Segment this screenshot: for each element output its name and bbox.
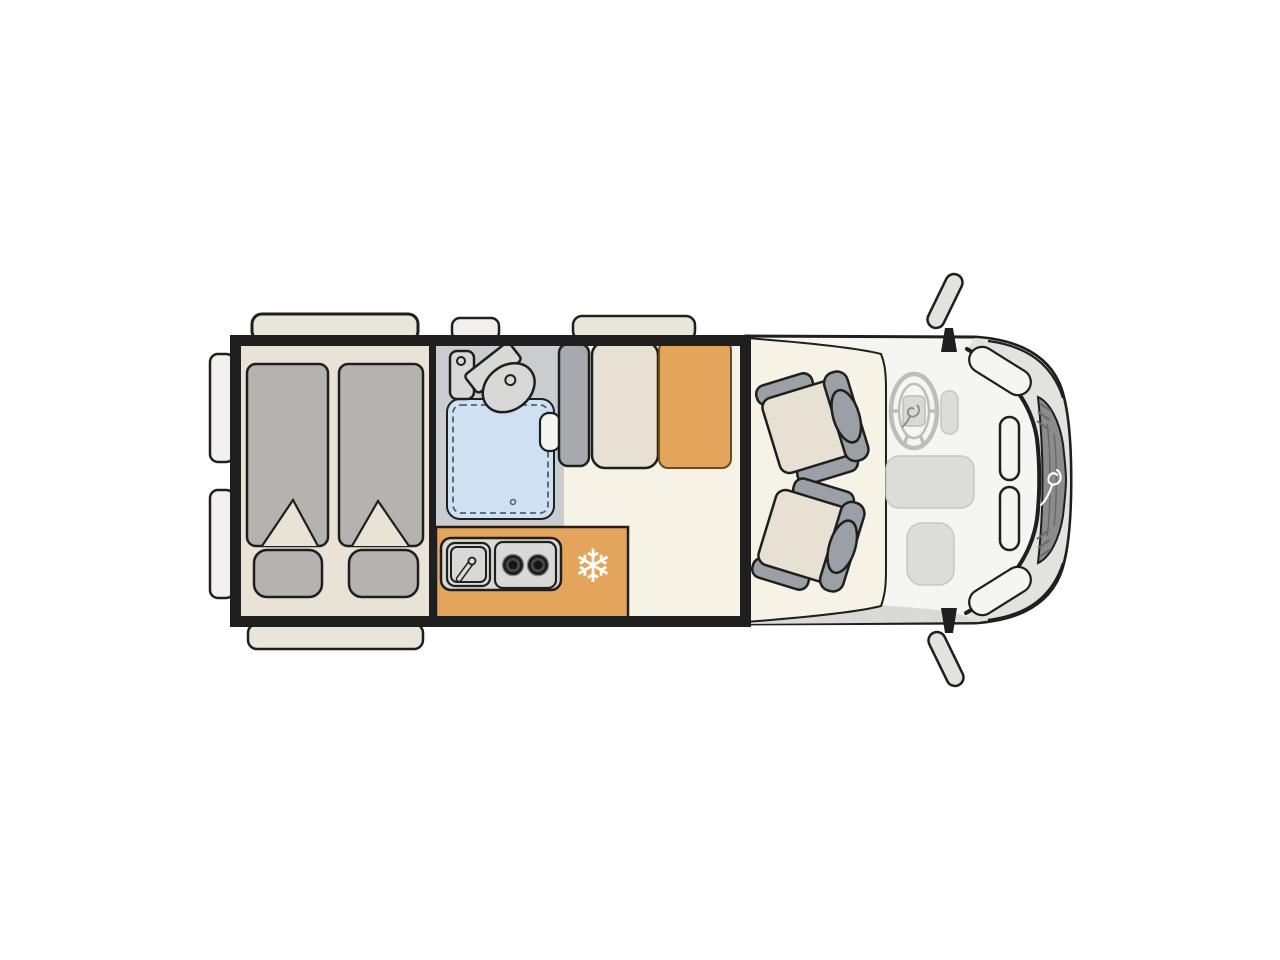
mirror-bottom (926, 629, 967, 689)
snowflake-icon: ❄ (574, 539, 613, 593)
dash-console (886, 456, 974, 508)
dash-cluster (941, 391, 958, 434)
front-vent-lower (1000, 487, 1019, 550)
pillow-left (254, 550, 322, 597)
faucet-head (469, 558, 476, 565)
mirror-top (925, 271, 966, 331)
bench-seat (592, 342, 658, 468)
pillow-right (349, 550, 418, 597)
campervan-floorplan: ❄ (0, 0, 1280, 960)
dash-glovebox (907, 523, 954, 585)
steering-wheel (891, 374, 937, 448)
kitchen: ❄ (436, 527, 628, 622)
dinette (559, 341, 731, 468)
mirror-arm-top (941, 328, 957, 352)
hob-burner-right (528, 555, 549, 576)
wardrobe (559, 344, 589, 466)
dinette-table (659, 341, 731, 468)
shower-tray (447, 399, 554, 519)
window-bed-bottom (248, 624, 423, 649)
bathroom (436, 341, 564, 528)
bedroom (240, 344, 436, 622)
shower-door-handle (540, 413, 560, 451)
sink-drain-knob (457, 357, 465, 365)
mirror-arm-bottom (941, 608, 957, 633)
floorplan-page: ❄ (0, 0, 1280, 960)
front-vent-upper (1000, 417, 1019, 480)
hob-burner-left (503, 555, 524, 576)
